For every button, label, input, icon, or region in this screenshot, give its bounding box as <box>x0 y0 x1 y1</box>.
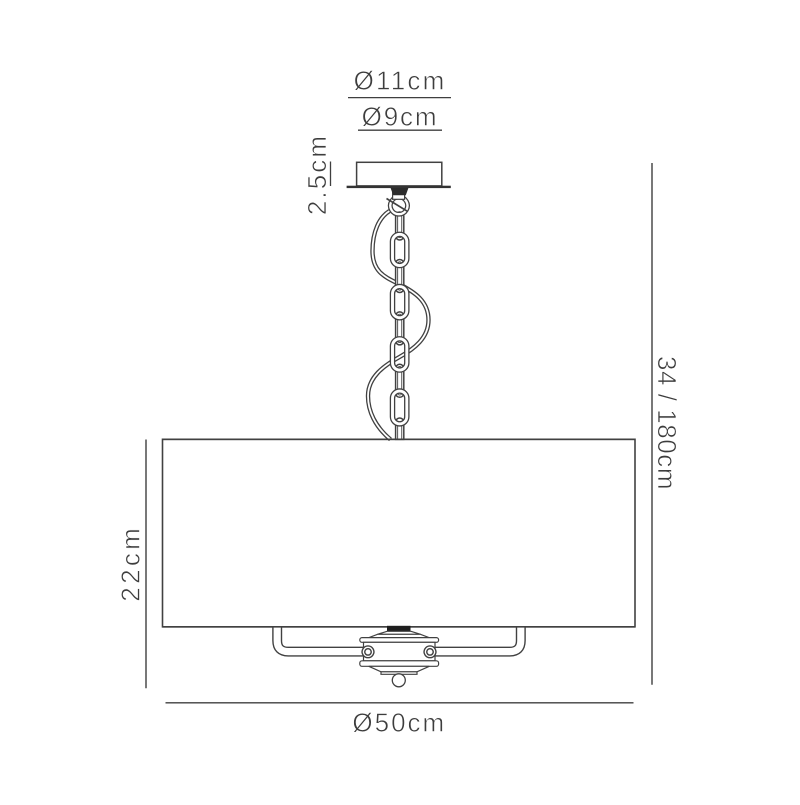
svg-text:34 / 180cm: 34 / 180cm <box>652 356 682 490</box>
svg-text:Ø50cm: Ø50cm <box>352 708 446 738</box>
svg-text:Ø9cm: Ø9cm <box>362 102 439 132</box>
svg-text:Ø11cm: Ø11cm <box>354 66 447 96</box>
svg-text:22cm: 22cm <box>116 525 146 602</box>
svg-text:2.5cm: 2.5cm <box>302 134 332 215</box>
